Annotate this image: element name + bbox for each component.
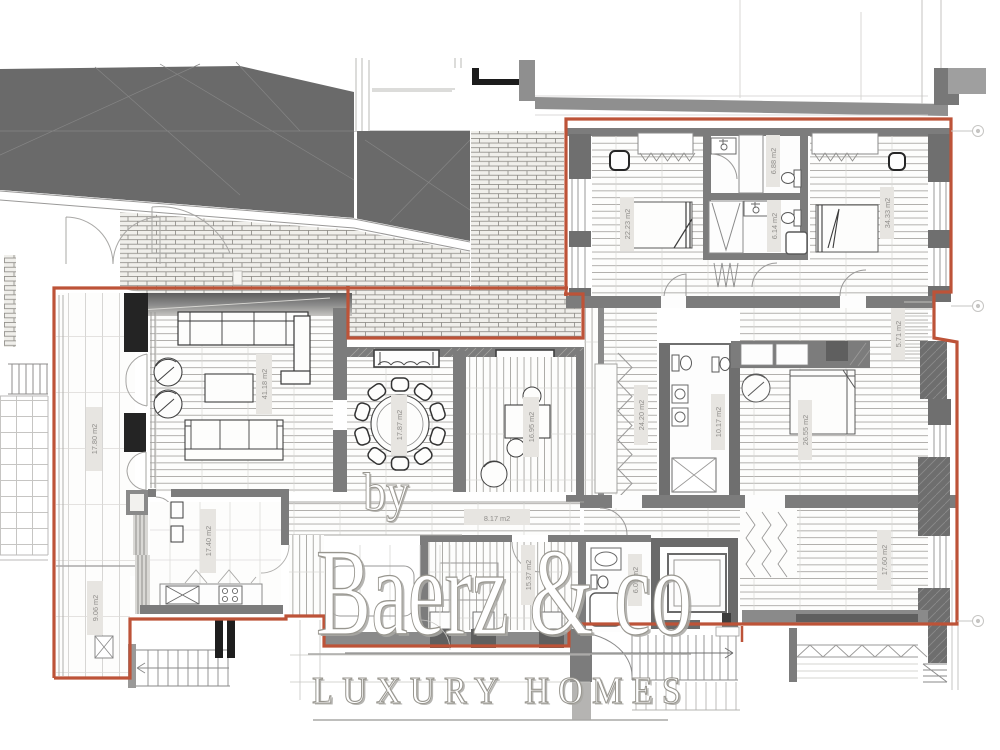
svg-text:26.55 m2: 26.55 m2 xyxy=(801,415,810,445)
svg-text:9.06 m2: 9.06 m2 xyxy=(91,595,100,621)
svg-text:24.20 m2: 24.20 m2 xyxy=(637,400,646,430)
svg-text:17.60 m2: 17.60 m2 xyxy=(880,545,889,575)
svg-text:16.95 m2: 16.95 m2 xyxy=(527,412,536,442)
svg-text:5.71 m2: 5.71 m2 xyxy=(894,321,903,347)
svg-text:LUXURY HOMES: LUXURY HOMES xyxy=(312,670,690,712)
svg-text:8.17 m2: 8.17 m2 xyxy=(484,514,510,523)
svg-text:17.87 m2: 17.87 m2 xyxy=(395,410,404,440)
svg-text:41.18 m2: 41.18 m2 xyxy=(260,369,269,399)
svg-text:17.40 m2: 17.40 m2 xyxy=(204,526,213,556)
svg-text:22.23 m2: 22.23 m2 xyxy=(623,209,632,239)
svg-text:17.80 m2: 17.80 m2 xyxy=(90,424,99,454)
svg-text:6.14 m2: 6.14 m2 xyxy=(770,213,779,239)
svg-text:34.33 m2: 34.33 m2 xyxy=(883,198,892,228)
svg-text:Baerz & co: Baerz & co xyxy=(316,524,692,661)
svg-text:10.17 m2: 10.17 m2 xyxy=(714,407,723,437)
svg-text:by: by xyxy=(363,462,409,522)
svg-text:6.88 m2: 6.88 m2 xyxy=(769,148,778,174)
